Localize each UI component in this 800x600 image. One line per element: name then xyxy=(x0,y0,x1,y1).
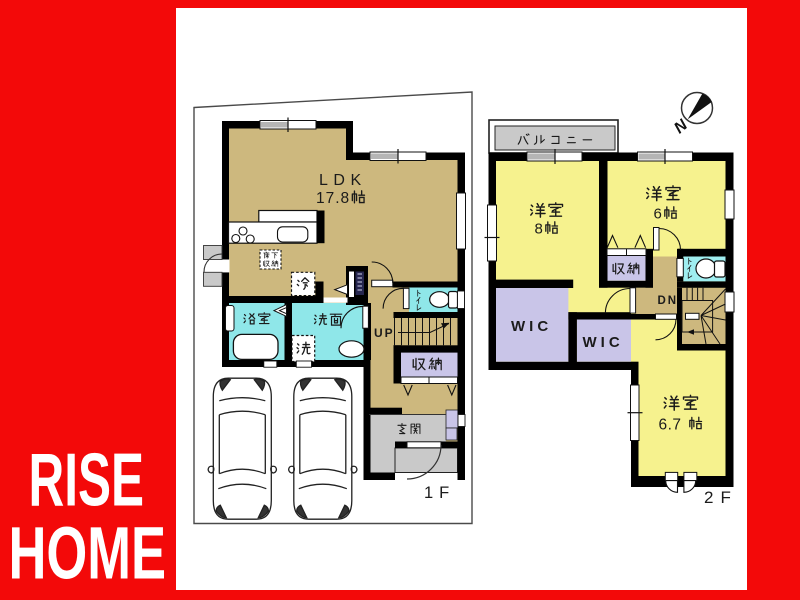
svg-text:6: 6 xyxy=(654,206,662,223)
svg-text:8: 8 xyxy=(535,221,543,238)
svg-text:WIC: WIC xyxy=(583,334,624,351)
svg-text:6.7: 6.7 xyxy=(659,417,682,434)
svg-text:17.8: 17.8 xyxy=(316,190,350,207)
svg-text:1F: 1F xyxy=(424,484,455,502)
svg-text:HOME: HOME xyxy=(9,512,167,595)
svg-text:LDK: LDK xyxy=(319,172,367,189)
svg-text:UP: UP xyxy=(374,326,395,340)
svg-text:DN: DN xyxy=(658,295,679,307)
svg-text:WIC: WIC xyxy=(511,318,552,335)
svg-text:RISE: RISE xyxy=(29,438,145,522)
svg-text:2F: 2F xyxy=(704,488,738,507)
